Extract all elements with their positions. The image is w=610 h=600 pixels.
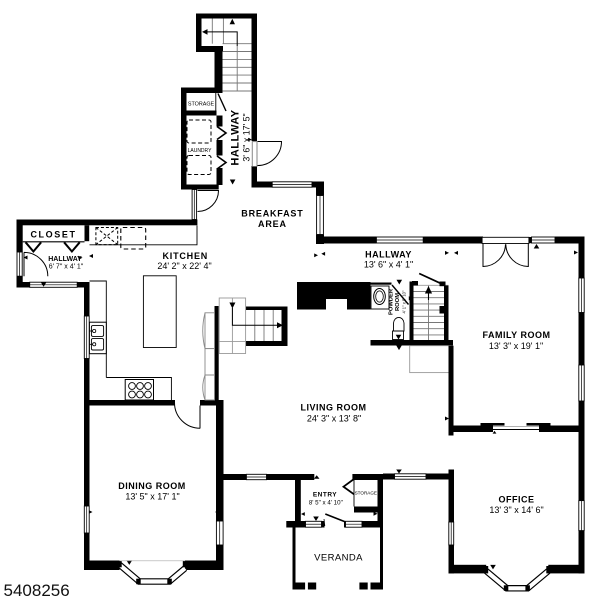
svg-text:CLOSET: CLOSET	[30, 229, 76, 239]
svg-text:STORAGE: STORAGE	[355, 490, 377, 495]
svg-text:BREAKFAST: BREAKFAST	[241, 209, 303, 219]
svg-text:FAMILY ROOM: FAMILY ROOM	[482, 330, 550, 340]
svg-text:6' 7" x 4' 1": 6' 7" x 4' 1"	[49, 264, 84, 271]
svg-text:24' 2" x 22' 4": 24' 2" x 22' 4"	[157, 261, 211, 271]
svg-text:KITCHEN: KITCHEN	[162, 251, 208, 261]
svg-text:4' 1" x 5' 10": 4' 1" x 5' 10"	[402, 290, 407, 313]
svg-text:13' 3" x 19' 1": 13' 3" x 19' 1"	[489, 341, 543, 351]
svg-text:13' 6" x 4' 1": 13' 6" x 4' 1"	[364, 260, 413, 270]
svg-text:STORAGE: STORAGE	[188, 102, 215, 108]
svg-text:DINING ROOM: DINING ROOM	[118, 481, 186, 491]
svg-text:8' 5" x 4' 10": 8' 5" x 4' 10"	[309, 499, 343, 506]
svg-text:VERANDA: VERANDA	[314, 553, 363, 564]
svg-text:5408256: 5408256	[4, 581, 70, 600]
svg-text:24' 3" x 13' 8": 24' 3" x 13' 8"	[307, 414, 361, 424]
svg-text:13' 3" x 14' 6": 13' 3" x 14' 6"	[489, 505, 543, 515]
svg-text:AREA: AREA	[258, 219, 287, 229]
svg-text:HALLWAY: HALLWAY	[365, 250, 412, 260]
svg-text:OFFICE: OFFICE	[499, 495, 535, 505]
svg-text:HALLWAY: HALLWAY	[230, 109, 242, 165]
svg-text:LIVING ROOM: LIVING ROOM	[301, 403, 367, 413]
svg-text:13' 5" x 17' 1": 13' 5" x 17' 1"	[125, 492, 179, 502]
svg-text:LAUNDRY: LAUNDRY	[188, 148, 212, 154]
svg-text:3' 6" x 17' 5": 3' 6" x 17' 5"	[241, 113, 251, 161]
svg-text:HALLWAY: HALLWAY	[48, 256, 82, 263]
svg-text:ROOM: ROOM	[395, 293, 401, 311]
svg-text:ENTRY: ENTRY	[313, 491, 337, 498]
svg-text:POWDER: POWDER	[389, 288, 395, 315]
